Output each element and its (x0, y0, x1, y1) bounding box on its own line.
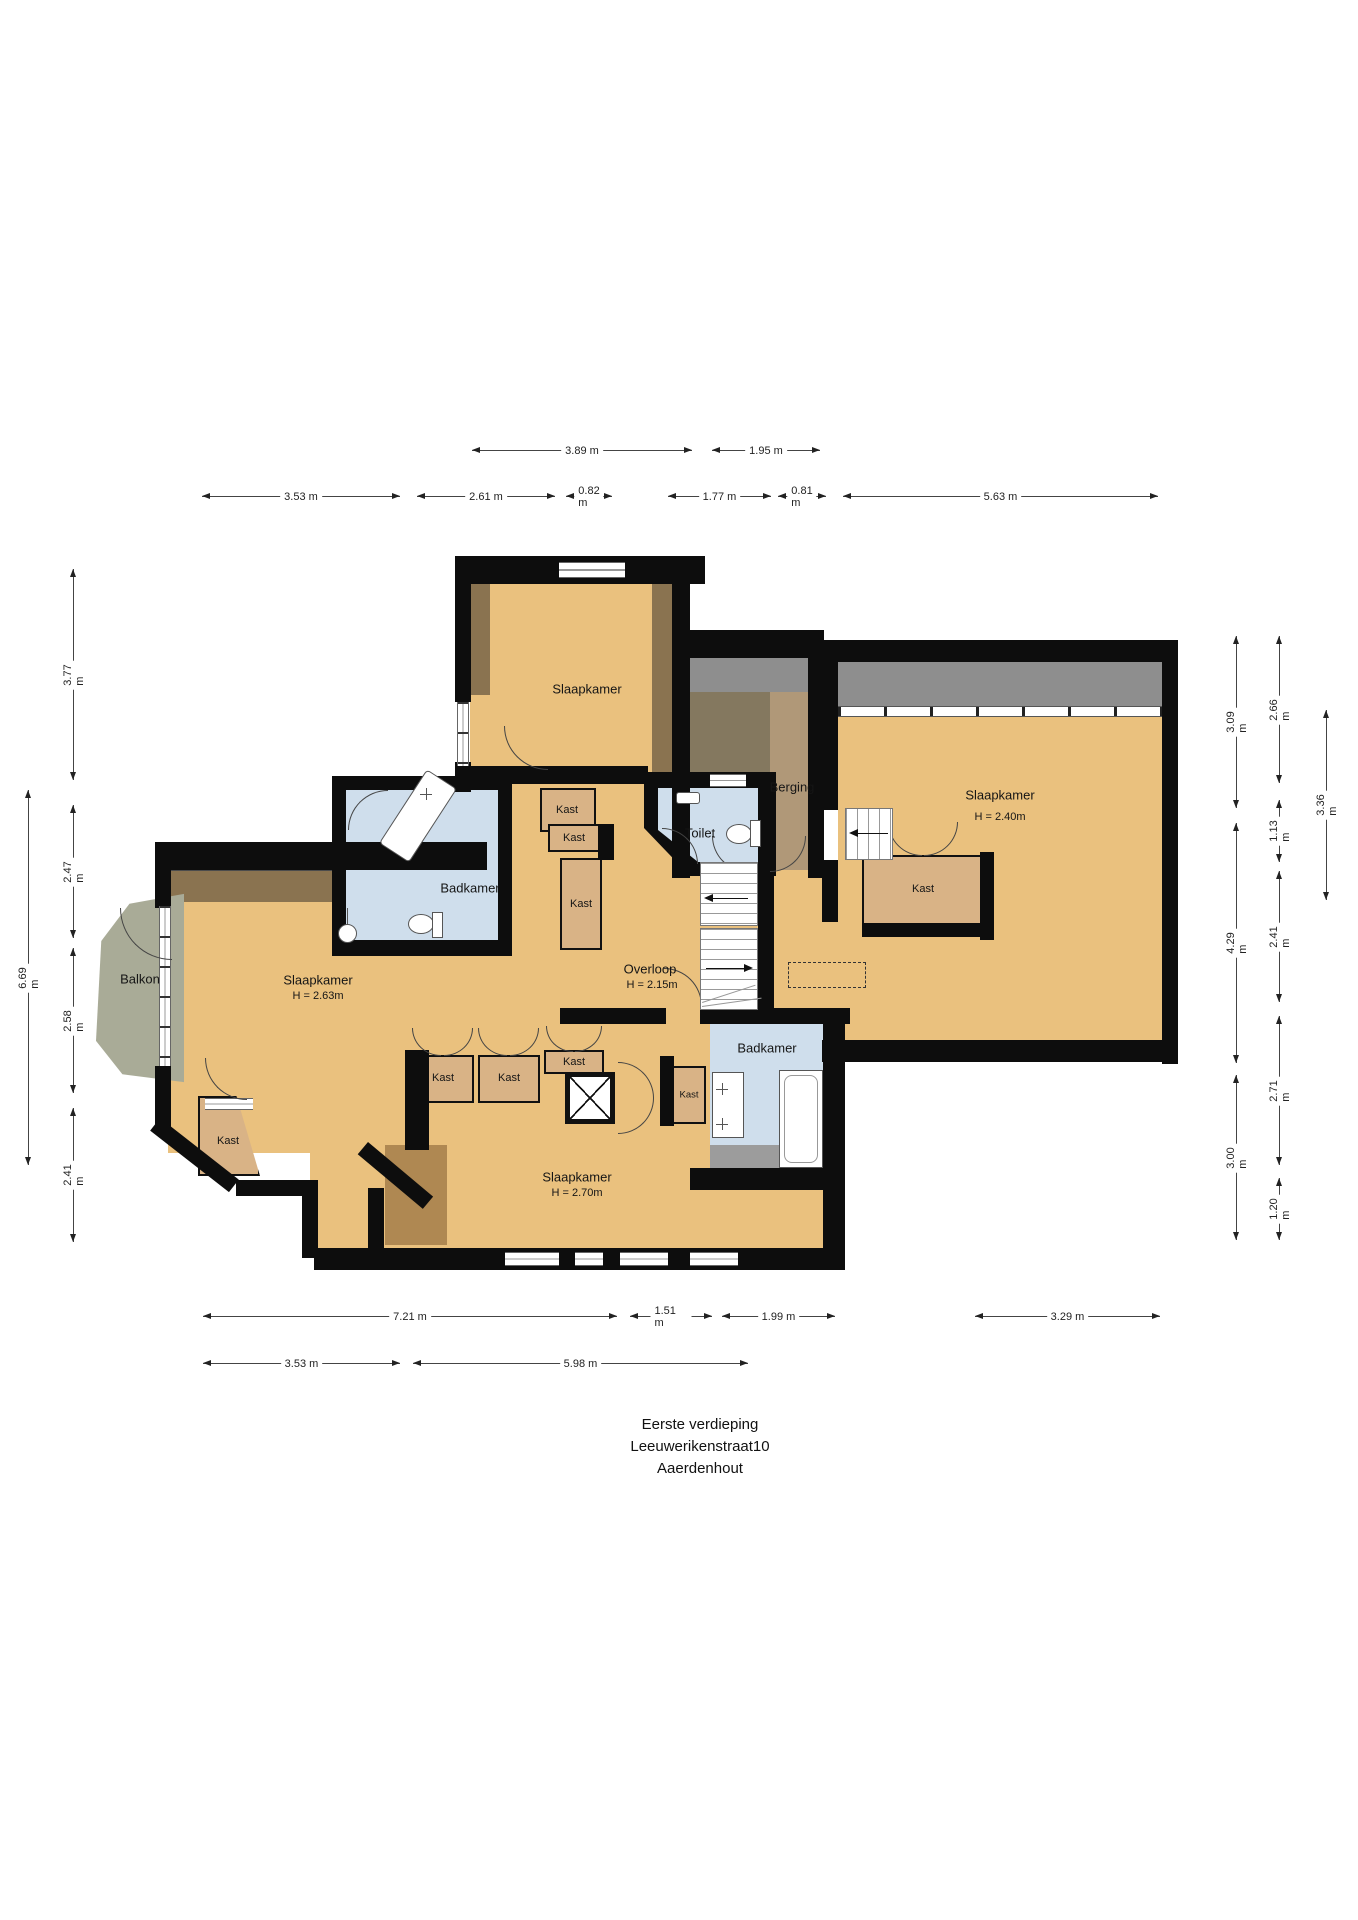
dimension-label: 2.61 m (465, 491, 507, 503)
dimension: 3.09 m (1232, 636, 1241, 808)
dimension-label: 6.69 m (17, 963, 41, 992)
dimension-label: 2.58 m (62, 1006, 86, 1035)
dimension: 3.53 m (203, 1359, 400, 1368)
dimension: 0.82 m (566, 492, 612, 501)
dimension: 6.69 m (24, 790, 33, 1165)
dimension-label: 1.99 m (758, 1311, 800, 1323)
dimension-label: 3.89 m (561, 445, 603, 457)
dimension: 2.41 m (69, 1108, 78, 1242)
dimension: 4.29 m (1232, 823, 1241, 1063)
dimension: 1.13 m (1275, 800, 1284, 862)
dimension-label: 2.66 m (1268, 695, 1292, 724)
dimension: 5.98 m (413, 1359, 748, 1368)
dimension: 3.29 m (975, 1312, 1160, 1321)
dimension: 3.77 m (69, 569, 78, 780)
dimension-label: 3.53 m (281, 1358, 323, 1370)
dimension-layer: 3.89 m 1.95 m 3.53 m 2.61 m 0.82 m 1.77 … (0, 0, 1358, 1920)
dimension: 1.95 m (712, 446, 820, 455)
dimension-label: 4.29 m (1225, 928, 1249, 957)
dimension-label: 3.53 m (280, 491, 322, 503)
dimension: 7.21 m (203, 1312, 617, 1321)
dimension: 2.47 m (69, 805, 78, 938)
dimension: 5.63 m (843, 492, 1158, 501)
dimension: 1.77 m (668, 492, 771, 501)
dimension-label: 2.47 m (62, 857, 86, 886)
dimension-label: 3.09 m (1225, 707, 1249, 736)
dimension: 2.58 m (69, 948, 78, 1093)
dimension: 1.99 m (722, 1312, 835, 1321)
dimension: 1.20 m (1275, 1178, 1284, 1240)
dimension-label: 0.82 m (574, 485, 603, 509)
dimension-label: 3.36 m (1315, 790, 1339, 819)
floorplan-canvas: Slaapkamer Berging Toilet Slaapkamer H =… (0, 0, 1358, 1920)
dimension: 0.81 m (778, 492, 826, 501)
dimension-label: 3.00 m (1225, 1143, 1249, 1172)
dimension: 3.53 m (202, 492, 400, 501)
dimension-label: 1.77 m (699, 491, 741, 503)
dimension-label: 2.41 m (62, 1160, 86, 1189)
title-block: Eerste verdieping Leeuwerikenstraat10 Aa… (480, 1414, 920, 1480)
dimension: 3.89 m (472, 446, 692, 455)
dimension-label: 1.51 m (651, 1305, 692, 1329)
dimension-label: 3.77 m (62, 660, 86, 689)
dimension-label: 1.95 m (745, 445, 787, 457)
dimension: 1.51 m (630, 1312, 712, 1321)
title-floor: Eerste verdieping (480, 1414, 920, 1436)
title-city: Aaerdenhout (480, 1458, 920, 1480)
dimension-label: 1.20 m (1268, 1194, 1292, 1223)
dimension-label: 2.41 m (1268, 922, 1292, 951)
dimension-label: 2.71 m (1268, 1076, 1292, 1105)
dimension: 3.36 m (1322, 710, 1331, 900)
dimension-label: 7.21 m (389, 1311, 431, 1323)
dimension: 2.41 m (1275, 871, 1284, 1002)
dimension-label: 3.29 m (1047, 1311, 1089, 1323)
dimension: 2.71 m (1275, 1016, 1284, 1165)
dimension: 2.61 m (417, 492, 555, 501)
dimension-label: 5.98 m (560, 1358, 602, 1370)
dimension: 3.00 m (1232, 1075, 1241, 1240)
dimension-label: 1.13 m (1268, 816, 1292, 845)
title-street: Leeuwerikenstraat10 (480, 1436, 920, 1458)
dimension-label: 5.63 m (980, 491, 1022, 503)
dimension: 2.66 m (1275, 636, 1284, 783)
dimension-label: 0.81 m (787, 485, 816, 509)
